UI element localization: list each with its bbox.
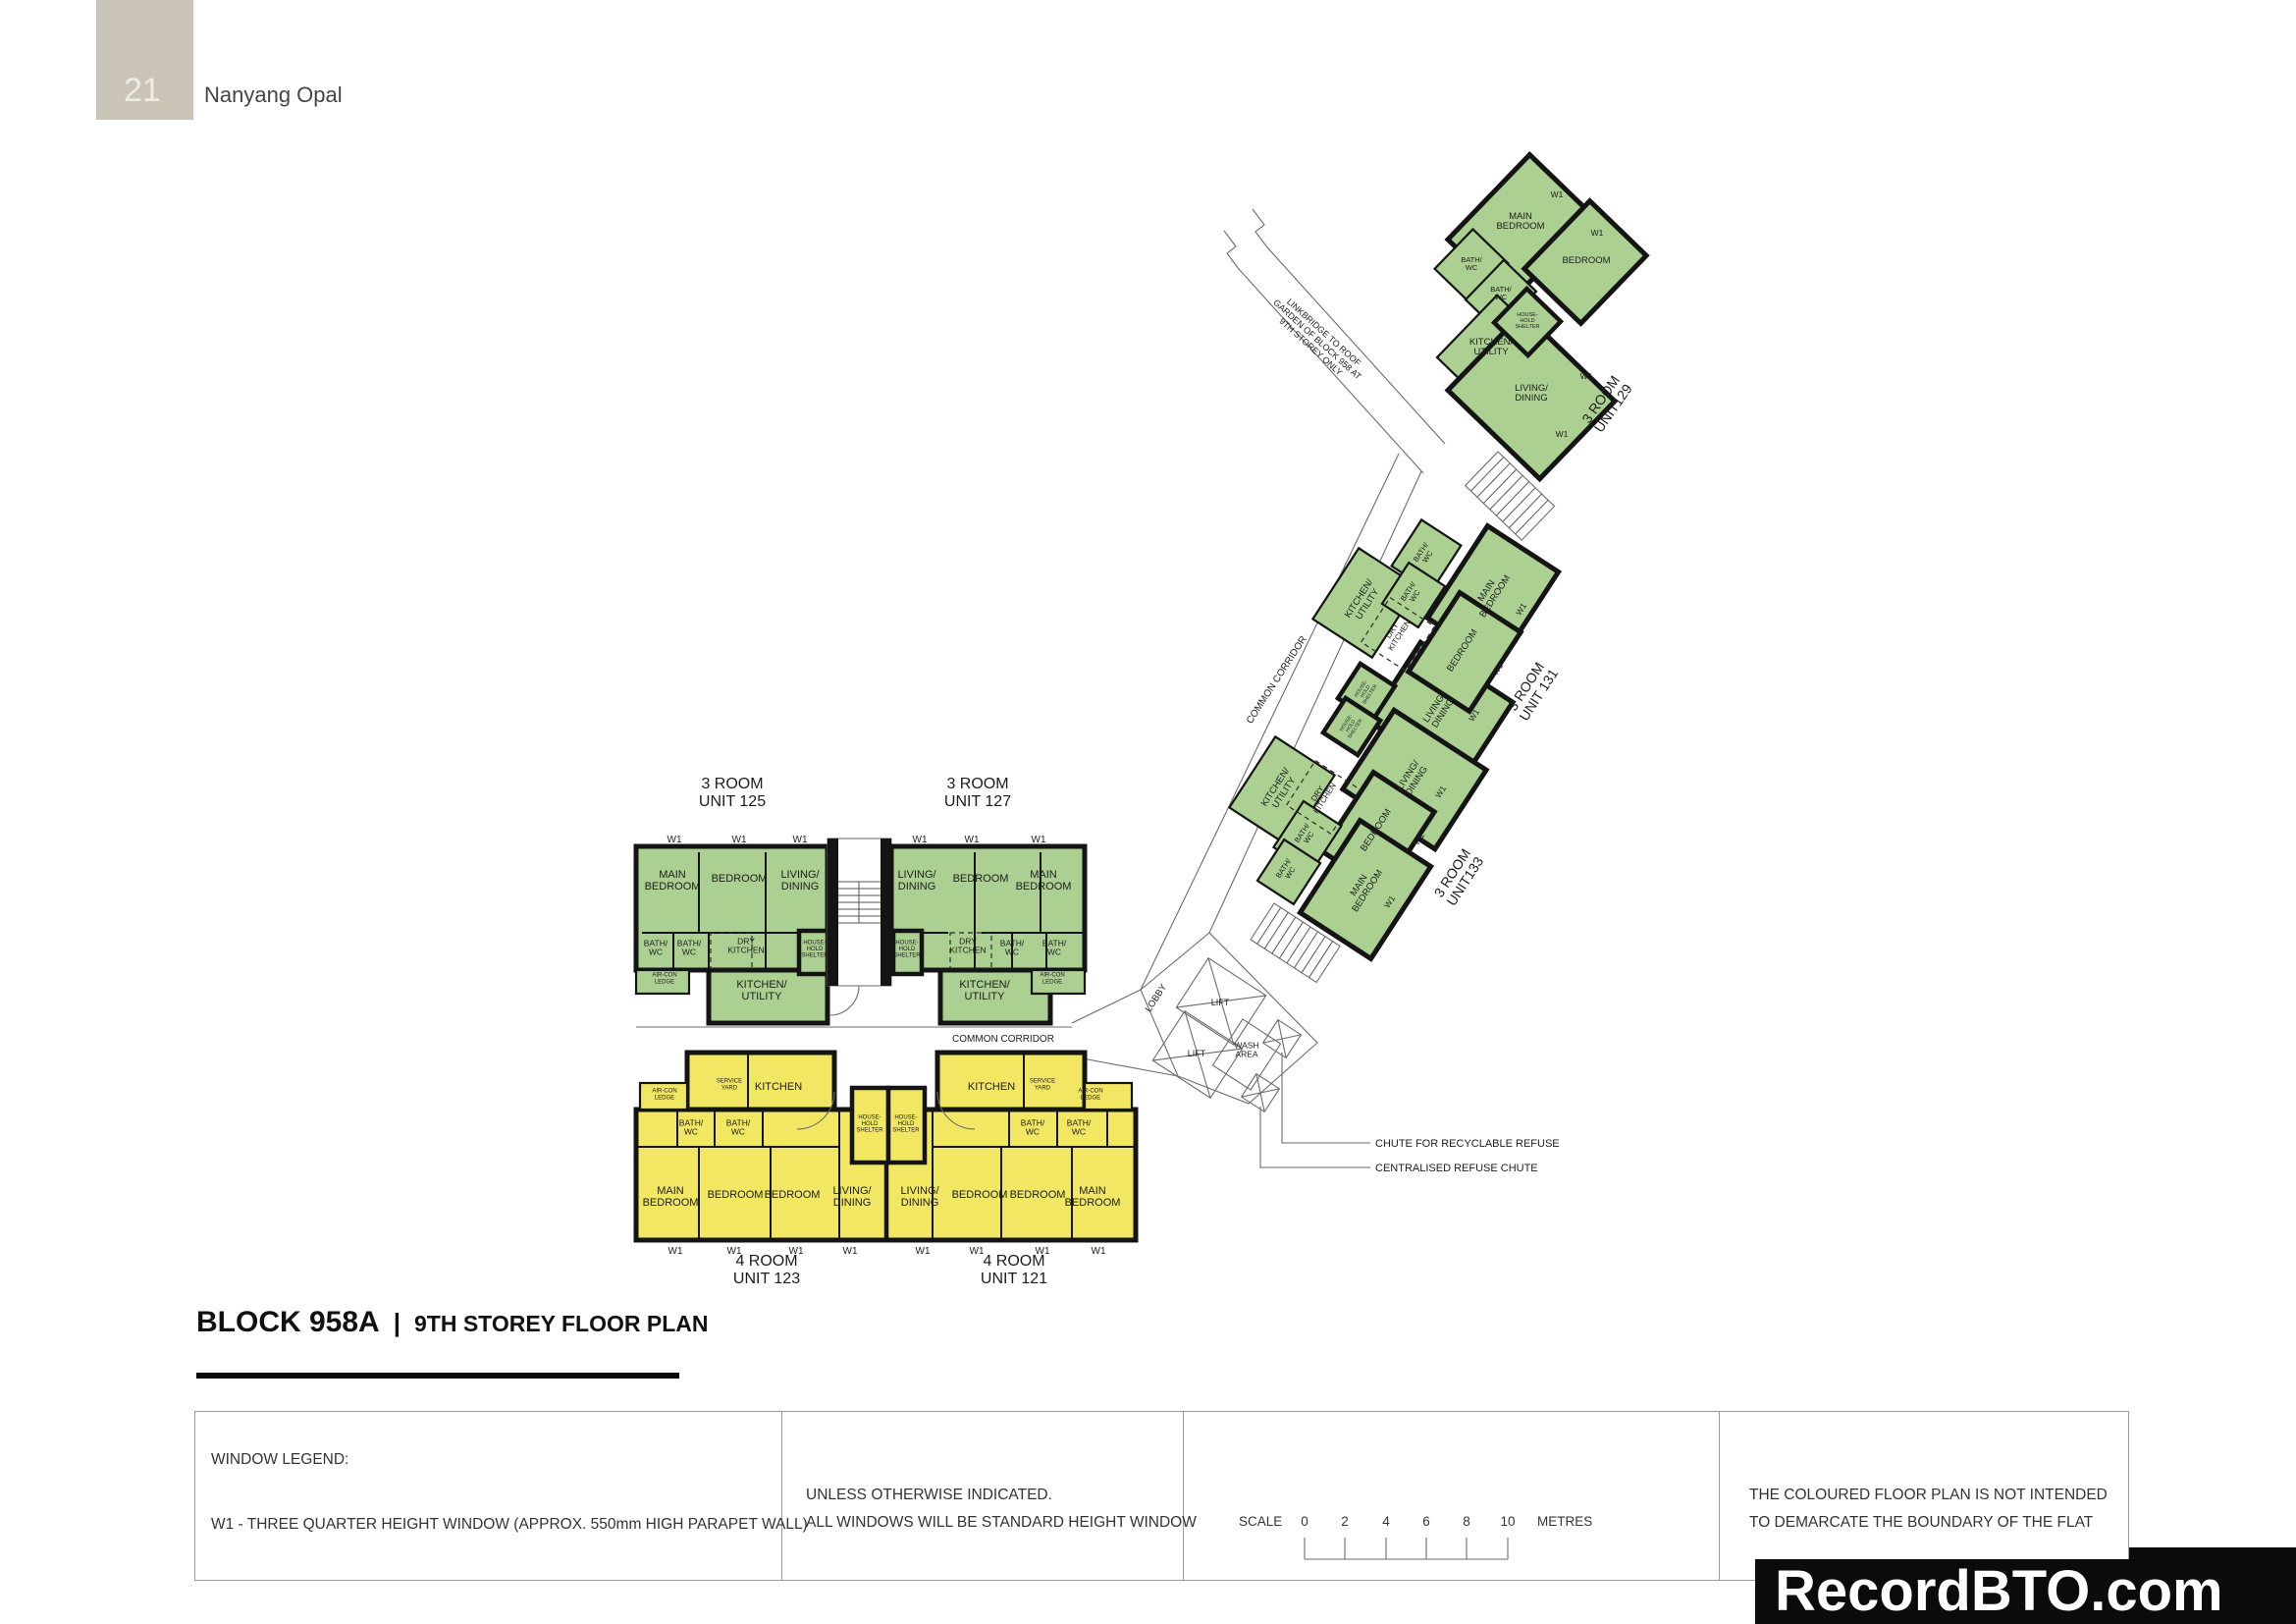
w1-label: W1 bbox=[668, 1246, 683, 1257]
room-label-aircon-ledge: AIR-CONLEDGE bbox=[1040, 973, 1064, 986]
room-label-bedroom: BEDROOM bbox=[952, 1189, 1008, 1201]
unit-129 bbox=[1435, 155, 1647, 479]
scale-tick-label: 2 bbox=[1341, 1514, 1349, 1529]
w1-label: W1 bbox=[667, 835, 682, 845]
w1-label: W1 bbox=[732, 835, 747, 845]
room-label-bedroom: BEDROOM bbox=[1562, 255, 1610, 266]
room-label-kitchen-utility: KITCHEN/UTILITY bbox=[959, 979, 1010, 1002]
scale-bar: SCALE 0246810 METRES bbox=[1184, 1412, 1719, 1580]
callout-recyclable-chute: CHUTE FOR RECYCLABLE REFUSE bbox=[1375, 1138, 1560, 1150]
lobby-label: LOBBY bbox=[1144, 982, 1170, 1014]
room-label-aircon-ledge: AIR-CONLEDGE bbox=[1078, 1089, 1102, 1102]
room-label-living-dining: LIVING/DINING bbox=[832, 1185, 872, 1209]
w1-label: W1 bbox=[1551, 189, 1564, 199]
unit-121-title: 4 ROOMUNIT 121 bbox=[981, 1253, 1047, 1287]
room-label-kitchen: KITCHEN bbox=[755, 1081, 802, 1093]
lobby-outline bbox=[1141, 933, 1317, 1104]
recyclable-refuse-chute bbox=[1263, 1020, 1302, 1058]
w1-label: W1 bbox=[793, 835, 808, 845]
w1-label: W1 bbox=[916, 1246, 931, 1257]
w1-label: W1 bbox=[1580, 371, 1593, 381]
scale-tick-label: 10 bbox=[1500, 1514, 1515, 1529]
w1-label: W1 bbox=[1556, 429, 1569, 439]
scale-tick-label: 6 bbox=[1422, 1514, 1430, 1529]
staircase bbox=[828, 839, 891, 1015]
room-label-bedroom: BEDROOM bbox=[765, 1189, 821, 1201]
unit-123-121-block bbox=[636, 1053, 1136, 1240]
w1-label: W1 bbox=[843, 1246, 858, 1257]
disclaimer-line2: TO DEMARCATE THE BOUNDARY OF THE FLAT bbox=[1749, 1514, 2093, 1532]
room-label-kitchen: KITCHEN bbox=[968, 1081, 1015, 1093]
room-label-living-dining: LIVING/DINING bbox=[900, 1185, 939, 1209]
common-corridor-label: COMMON CORRIDOR bbox=[952, 1034, 1054, 1045]
w1-label: W1 bbox=[1591, 228, 1604, 238]
lift-label: LIFT bbox=[1188, 1049, 1206, 1058]
storey-title: 9TH STOREY FLOOR PLAN bbox=[414, 1311, 708, 1336]
scale-label: SCALE bbox=[1239, 1514, 1282, 1529]
block-title: BLOCK 958A|9TH STOREY FLOOR PLAN bbox=[196, 1306, 708, 1339]
legend-table: WINDOW LEGEND: W1 - THREE QUARTER HEIGHT… bbox=[194, 1411, 2129, 1581]
window-legend-heading: WINDOW LEGEND: bbox=[211, 1451, 348, 1469]
disclaimer-line1: THE COLOURED FLOOR PLAN IS NOT INTENDED bbox=[1749, 1487, 2108, 1504]
w1-label: W1 bbox=[1092, 1246, 1106, 1257]
unit-131-title: 3 ROOMUNIT 131 bbox=[1503, 658, 1561, 724]
title-separator: | bbox=[394, 1308, 400, 1337]
linkbridge-note: LINKBRIDGE TO ROOFGARDEN OF BLOCK 958 AT… bbox=[1265, 291, 1370, 390]
callout-lines bbox=[1260, 1053, 1370, 1167]
w1-label: W1 bbox=[965, 835, 980, 845]
room-label-bedroom: BEDROOM bbox=[1010, 1189, 1066, 1201]
windows-note-panel: UNLESS OTHERWISE INDICATED. ALL WINDOWS … bbox=[782, 1412, 1183, 1580]
scale-unit: METRES bbox=[1537, 1514, 1592, 1529]
room-label-aircon-ledge: AIR-CONLEDGE bbox=[652, 1089, 676, 1102]
room-label-kitchen-utility: KITCHEN/UTILITY bbox=[736, 979, 787, 1002]
w1-label: W1 bbox=[1032, 835, 1046, 845]
scale-tick-label: 4 bbox=[1382, 1514, 1390, 1529]
room-label-bedroom: BEDROOM bbox=[953, 873, 1009, 885]
callout-refuse-chute: CENTRALISED REFUSE CHUTE bbox=[1375, 1163, 1538, 1174]
wash-area-label: WASHAREA bbox=[1234, 1040, 1258, 1058]
common-corridor-label: COMMON CORRIDOR bbox=[1245, 634, 1309, 726]
scale-tick-label: 8 bbox=[1463, 1514, 1470, 1529]
room-label-bedroom: BEDROOM bbox=[712, 873, 768, 885]
room-label-living-dining: LIVING/DINING bbox=[780, 869, 820, 893]
scale-tick-label: 0 bbox=[1301, 1514, 1308, 1529]
room-label-bedroom: BEDROOM bbox=[708, 1189, 764, 1201]
window-legend-w1: W1 - THREE QUARTER HEIGHT WINDOW (APPROX… bbox=[211, 1516, 808, 1534]
title-underline bbox=[196, 1373, 679, 1379]
room-label-kitchen-utility: KITCHEN/UTILITY bbox=[1469, 337, 1514, 357]
unit-123-title: 4 ROOMUNIT 123 bbox=[733, 1253, 800, 1287]
room-label-living-dining: LIVING/DINING bbox=[1515, 383, 1548, 404]
unit-127-title: 3 ROOMUNIT 127 bbox=[944, 776, 1011, 810]
floor-plan-drawing: 3 ROOMUNIT 1253 ROOMUNIT 127W1W1W1W1W1W1… bbox=[0, 0, 2296, 1624]
scale-panel: SCALE 0246810 METRES bbox=[1184, 1412, 1719, 1580]
disclaimer-panel: THE COLOURED FLOOR PLAN IS NOT INTENDED … bbox=[1720, 1412, 2128, 1580]
room-label-aircon-ledge: AIR-CONLEDGE bbox=[652, 973, 676, 986]
watermark: RecordBTO.com bbox=[1755, 1559, 2296, 1624]
lift-label: LIFT bbox=[1211, 998, 1230, 1007]
w1-label: W1 bbox=[913, 835, 928, 845]
floor-plan-page: { "header": { "page_number": "21", "proj… bbox=[0, 0, 2296, 1624]
windows-note-line2: ALL WINDOWS WILL BE STANDARD HEIGHT WIND… bbox=[806, 1514, 1197, 1532]
unit-133-title: 3 ROOMUNIT133 bbox=[1430, 845, 1486, 908]
window-legend-panel: WINDOW LEGEND: W1 - THREE QUARTER HEIGHT… bbox=[195, 1412, 781, 1580]
unit-125-title: 3 ROOMUNIT 125 bbox=[699, 776, 766, 810]
windows-note-line1: UNLESS OTHERWISE INDICATED. bbox=[806, 1487, 1052, 1504]
block-number: BLOCK 958A bbox=[196, 1306, 380, 1338]
centralised-refuse-chute bbox=[1242, 1074, 1280, 1112]
room-label-living-dining: LIVING/DINING bbox=[897, 869, 936, 893]
